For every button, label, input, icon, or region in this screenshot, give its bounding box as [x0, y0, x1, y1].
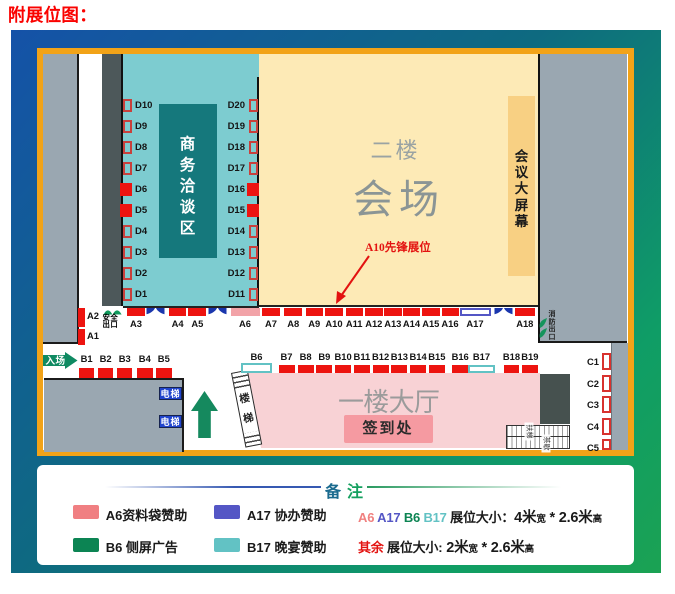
svg-text:入场: 入场: [45, 355, 66, 367]
